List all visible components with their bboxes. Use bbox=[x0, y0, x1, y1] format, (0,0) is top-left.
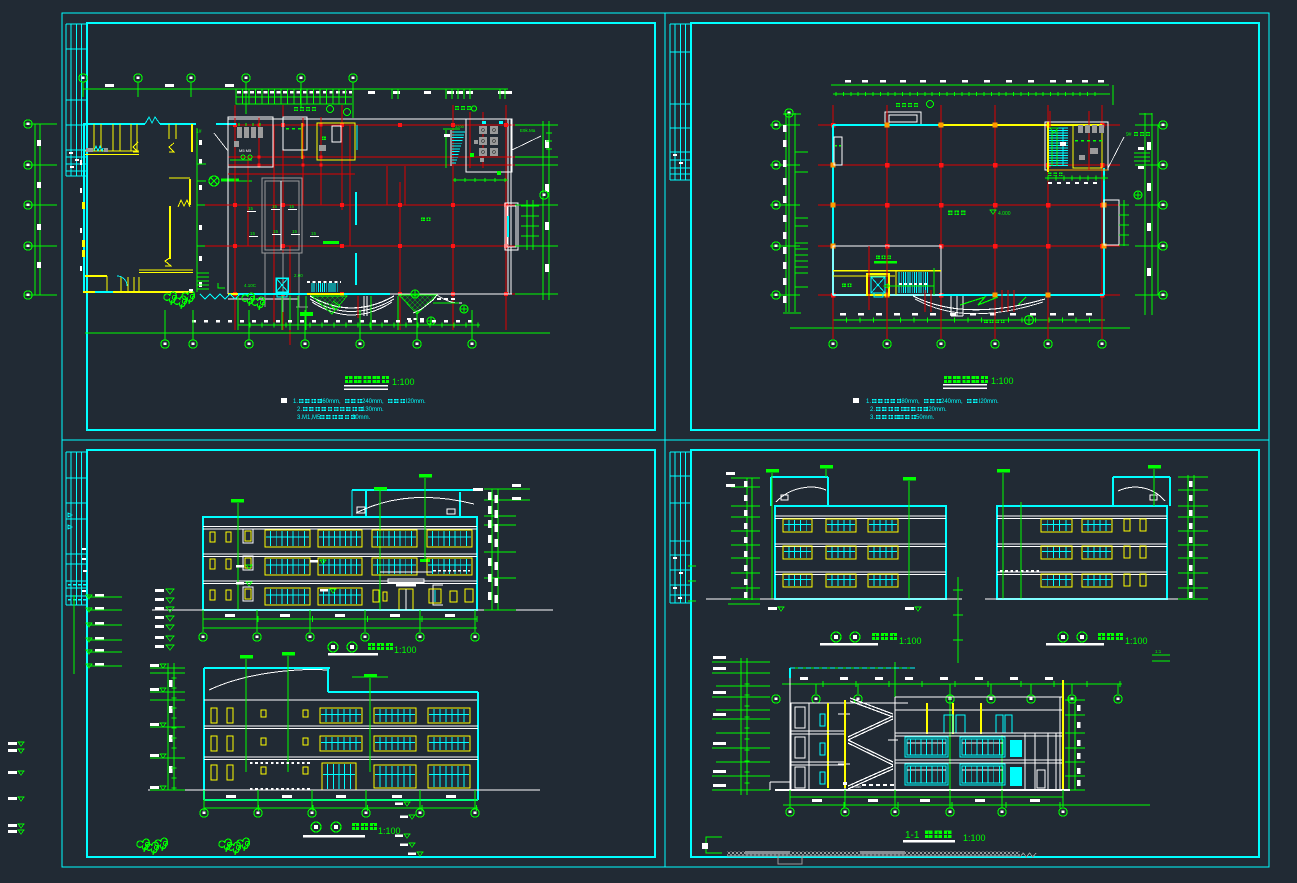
svg-text:3.M1,M5: 3.M1,M5 bbox=[297, 415, 321, 421]
svg-text:3.: 3. bbox=[870, 415, 875, 421]
svg-text:1:100: 1:100 bbox=[963, 833, 986, 843]
svg-text:l60mm,: l60mm, bbox=[321, 399, 341, 405]
svg-text:1:100: 1:100 bbox=[899, 636, 922, 646]
svg-text:1:100: 1:100 bbox=[991, 376, 1014, 386]
svg-text:50mm.: 50mm. bbox=[916, 415, 935, 421]
svg-text:15: 15 bbox=[311, 231, 317, 236]
svg-text:1:100: 1:100 bbox=[1125, 636, 1148, 646]
svg-text:2.: 2. bbox=[870, 407, 875, 413]
svg-text:130mm.: 130mm. bbox=[362, 407, 384, 413]
svg-text:M5 M5: M5 M5 bbox=[239, 148, 252, 153]
svg-text:15: 15 bbox=[292, 229, 298, 234]
svg-text:3200: 3200 bbox=[455, 124, 465, 129]
svg-text:15: 15 bbox=[272, 204, 278, 209]
svg-text:4.000: 4.000 bbox=[998, 211, 1011, 217]
svg-text:15: 15 bbox=[289, 204, 295, 209]
svg-text:15: 15 bbox=[248, 206, 254, 211]
svg-text:1.: 1. bbox=[293, 399, 298, 405]
svg-text:15: 15 bbox=[273, 229, 279, 234]
svg-text:4.10C: 4.10C bbox=[244, 283, 257, 288]
svg-text:9#: 9# bbox=[1126, 132, 1132, 138]
svg-text:240mm,: 240mm, bbox=[941, 399, 963, 405]
svg-text:l20mm.: l20mm. bbox=[979, 399, 999, 405]
svg-text:1:1: 1:1 bbox=[1155, 649, 1162, 654]
svg-text:2.00: 2.00 bbox=[294, 273, 303, 278]
svg-text:l80mm,: l80mm, bbox=[900, 399, 920, 405]
svg-text:30mm.: 30mm. bbox=[352, 415, 371, 421]
svg-text:1#: 1# bbox=[196, 129, 202, 135]
svg-text:1:100: 1:100 bbox=[392, 377, 415, 387]
svg-text:l20mm.: l20mm. bbox=[927, 407, 947, 413]
svg-text:-1.450: -1.450 bbox=[850, 784, 862, 789]
svg-text:2.: 2. bbox=[297, 407, 302, 413]
svg-text:l20mm.: l20mm. bbox=[406, 399, 426, 405]
svg-text:1-1: 1-1 bbox=[905, 830, 920, 841]
svg-text:1:100: 1:100 bbox=[394, 645, 417, 655]
svg-text:E9k.Ma: E9k.Ma bbox=[520, 128, 536, 133]
svg-text:240mm,: 240mm, bbox=[362, 399, 384, 405]
svg-text:15: 15 bbox=[250, 231, 256, 236]
svg-text:1.: 1. bbox=[866, 399, 871, 405]
